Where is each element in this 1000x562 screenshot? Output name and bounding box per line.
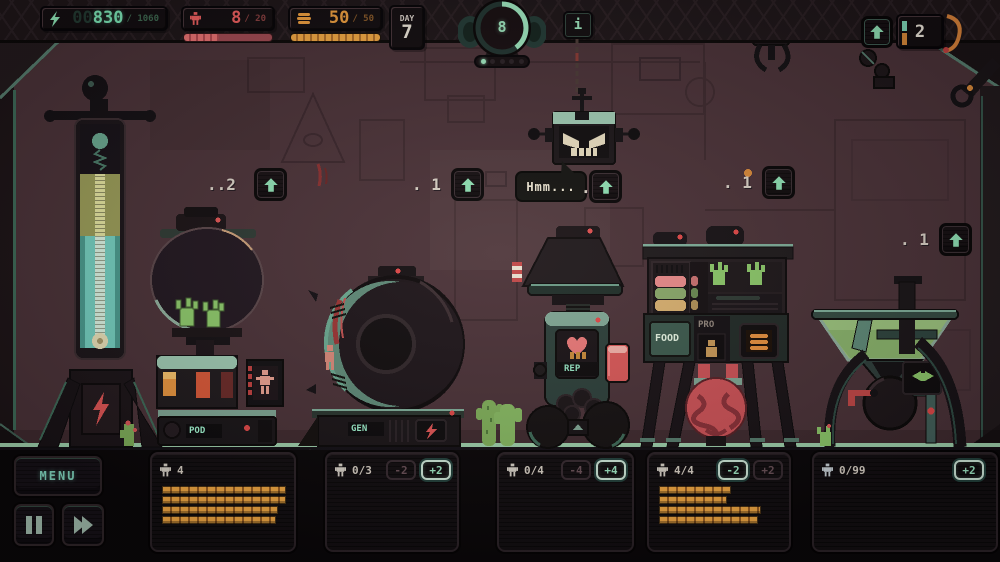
capacity-meter-icon bbox=[901, 20, 909, 46]
slot-count: 0/3 bbox=[352, 464, 372, 477]
up-arrow-icon bbox=[262, 176, 280, 194]
creature-dome[interactable] bbox=[151, 207, 263, 345]
decrease-button[interactable]: -2 bbox=[718, 460, 748, 480]
pod-machine-label: POD bbox=[189, 426, 205, 436]
slot-progress-bars bbox=[659, 486, 761, 526]
unit-slot-grinder[interactable]: 0/99 +2 bbox=[812, 452, 998, 552]
food-value: 50 bbox=[329, 10, 349, 27]
energy-value: 830 bbox=[93, 10, 124, 27]
person-icon bbox=[160, 463, 171, 477]
game-screen: POD GEN REP FOOD PRO 00 830 / 1060 8 / 2… bbox=[0, 0, 1000, 562]
food-max: / 50 bbox=[352, 14, 374, 24]
up-arrow-icon bbox=[770, 174, 788, 192]
menu-button[interactable]: MENU bbox=[14, 456, 102, 496]
increase-button[interactable]: +2 bbox=[753, 460, 783, 480]
grinder-upgrade-button[interactable] bbox=[939, 223, 972, 256]
unit-slot-gen[interactable]: 0/4 -4 +4 bbox=[497, 452, 634, 552]
unit-slot-workers[interactable]: 4 bbox=[150, 452, 296, 552]
info-button[interactable]: i bbox=[563, 11, 593, 39]
pod-machine[interactable] bbox=[157, 340, 283, 445]
burger-icon bbox=[297, 12, 311, 26]
gen-upgrade-cost: . 1 bbox=[412, 175, 441, 194]
food-panel: 50 / 50 bbox=[288, 6, 383, 31]
slot-progress-bars bbox=[162, 486, 286, 526]
grinder-machine[interactable] bbox=[812, 276, 960, 447]
food-upgrade-button[interactable] bbox=[762, 166, 795, 199]
population-value: 8 bbox=[231, 10, 241, 27]
increase-button[interactable]: +2 bbox=[954, 460, 984, 480]
day-panel: DAY 7 bbox=[389, 5, 425, 50]
population-progressbar bbox=[183, 33, 273, 42]
person-icon bbox=[335, 463, 346, 477]
pause-button[interactable] bbox=[14, 504, 54, 546]
wall-arm bbox=[860, 50, 894, 88]
slot-count: 4/4 bbox=[674, 464, 694, 477]
info-icon: i bbox=[574, 17, 582, 33]
unit-slot-pod[interactable]: 0/3 -2 +2 bbox=[325, 452, 459, 552]
increase-button[interactable]: +2 bbox=[421, 460, 451, 480]
claw-hook-icon bbox=[941, 12, 967, 54]
day-value: 7 bbox=[401, 23, 412, 42]
capacity-value: 2 bbox=[915, 22, 925, 42]
robot-speech-text: Hmm... bbox=[526, 180, 575, 194]
capacity-upgrade-button[interactable] bbox=[861, 16, 893, 48]
lightning-icon bbox=[49, 11, 61, 27]
rep-upgrade-button[interactable] bbox=[589, 170, 622, 203]
up-arrow-icon bbox=[597, 178, 615, 196]
pod-upgrade-button[interactable] bbox=[254, 168, 287, 201]
pod-upgrade-cost: ..2 bbox=[207, 175, 236, 194]
fast-forward-button[interactable] bbox=[62, 504, 104, 546]
decrease-button[interactable]: -2 bbox=[386, 460, 416, 480]
slot-count: 0/99 bbox=[839, 464, 866, 477]
pause-icon bbox=[26, 516, 32, 534]
unit-slot-food[interactable]: 4/4 -2 +2 bbox=[647, 452, 791, 552]
rep-machine-label: REP bbox=[564, 364, 580, 374]
gen-upgrade-button[interactable] bbox=[451, 168, 484, 201]
population-panel: 8 / 20 bbox=[181, 6, 275, 31]
person-icon bbox=[657, 463, 668, 477]
increase-button[interactable]: +4 bbox=[596, 460, 626, 480]
pro-machine-label: PRO bbox=[698, 320, 714, 330]
person-icon bbox=[822, 463, 833, 477]
overseer-robot[interactable] bbox=[525, 86, 640, 168]
grinder-upgrade-cost: . 1 bbox=[900, 230, 929, 249]
slot-count: 4 bbox=[177, 464, 184, 477]
energy-max: / 1060 bbox=[126, 14, 159, 24]
generator-machine[interactable] bbox=[298, 266, 464, 446]
slot-count: 0/4 bbox=[524, 464, 544, 477]
menu-button-label: MENU bbox=[40, 469, 77, 483]
battery-tower[interactable] bbox=[38, 75, 162, 447]
capacity-panel: 2 bbox=[896, 14, 944, 49]
wave-gauge-dots bbox=[474, 55, 530, 68]
energy-ghost-digits: 00 bbox=[72, 10, 92, 27]
food-progressbar bbox=[290, 33, 381, 42]
up-arrow-icon bbox=[868, 23, 886, 41]
food-machine-label: FOOD bbox=[655, 333, 679, 344]
up-arrow-icon bbox=[459, 176, 477, 194]
up-arrow-icon bbox=[947, 231, 965, 249]
robot-speech-bubble: Hmm... bbox=[515, 171, 587, 202]
gen-machine-label: GEN bbox=[351, 424, 367, 434]
person-icon bbox=[507, 463, 518, 477]
population-max: / 20 bbox=[244, 14, 266, 24]
person-icon bbox=[190, 11, 201, 26]
energy-panel: 00 830 / 1060 bbox=[40, 6, 168, 31]
decrease-button[interactable]: -4 bbox=[561, 460, 591, 480]
wave-gauge-value: 8 bbox=[458, 18, 546, 36]
food-upgrade-cost: . 1 bbox=[723, 173, 752, 192]
